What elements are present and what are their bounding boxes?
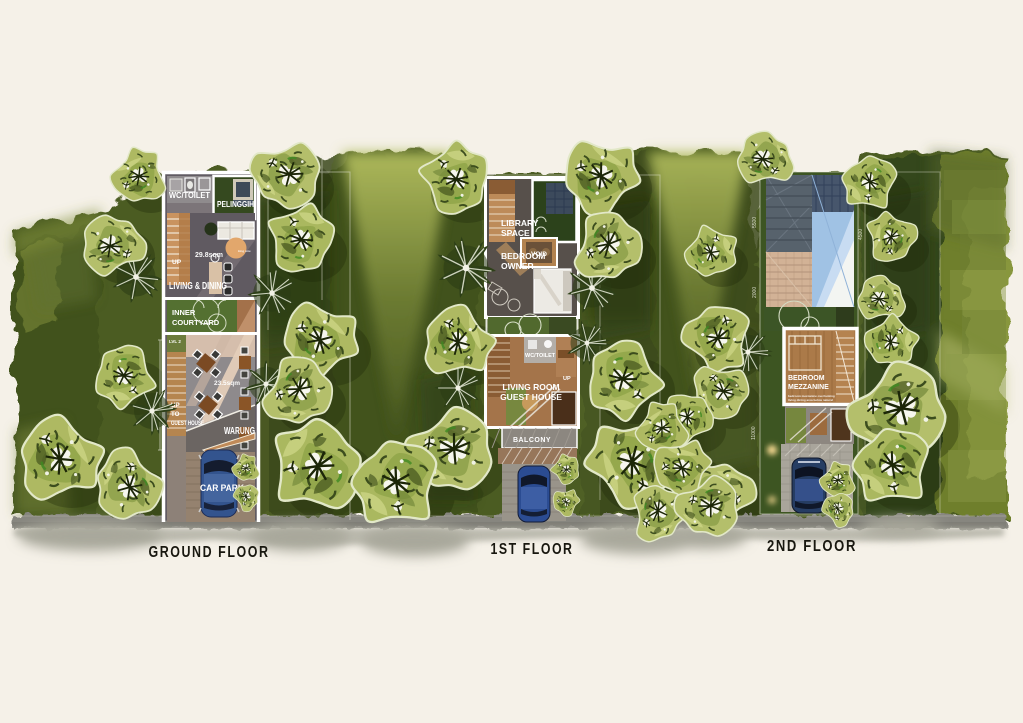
svg-text:2000: 2000 [752, 287, 758, 298]
svg-text:TO: TO [171, 411, 180, 418]
svg-text:LVL 2: LVL 2 [169, 339, 181, 344]
svg-text:king size: king size [238, 249, 251, 253]
svg-text:OWNER: OWNER [501, 261, 534, 271]
svg-text:BALCONY: BALCONY [513, 437, 551, 444]
svg-text:INNER: INNER [172, 308, 196, 317]
svg-text:COURTYARD: COURTYARD [172, 318, 220, 327]
svg-text:UP: UP [563, 376, 571, 382]
svg-text:UP: UP [172, 259, 182, 266]
svg-text:BEDROOM: BEDROOM [501, 251, 545, 261]
svg-text:MEZZANINE: MEZZANINE [788, 384, 829, 391]
svg-text:WC/TOILET: WC/TOILET [525, 353, 556, 359]
svg-text:4500: 4500 [858, 229, 864, 240]
svg-text:GUEST HOUSE: GUEST HOUSE [171, 420, 204, 427]
svg-text:5500: 5500 [752, 217, 758, 228]
svg-text:WC/TOILET: WC/TOILET [169, 190, 211, 200]
svg-text:2ND FLOOR: 2ND FLOOR [767, 538, 857, 555]
svg-text:GROUND FLOOR: GROUND FLOOR [149, 544, 270, 561]
svg-text:LIVING ROOM: LIVING ROOM [502, 382, 559, 392]
svg-text:LIBRARY: LIBRARY [501, 218, 539, 228]
svg-text:WARUNG: WARUNG [224, 426, 255, 437]
svg-text:LIVING & DINING: LIVING & DINING [169, 281, 227, 292]
svg-text:BEDROOM: BEDROOM [788, 375, 825, 382]
svg-text:PELINGGIH: PELINGGIH [217, 199, 254, 209]
svg-text:GUEST HOUSE: GUEST HOUSE [500, 392, 562, 402]
svg-text:1ST FLOOR: 1ST FLOOR [491, 541, 574, 558]
svg-text:SPACE: SPACE [501, 228, 530, 238]
svg-text:11000: 11000 [751, 426, 757, 440]
svg-text:white light entering: white light entering [787, 402, 816, 406]
svg-text:23.5sqm: 23.5sqm [214, 380, 240, 387]
svg-text:29.8sqm: 29.8sqm [195, 252, 223, 259]
